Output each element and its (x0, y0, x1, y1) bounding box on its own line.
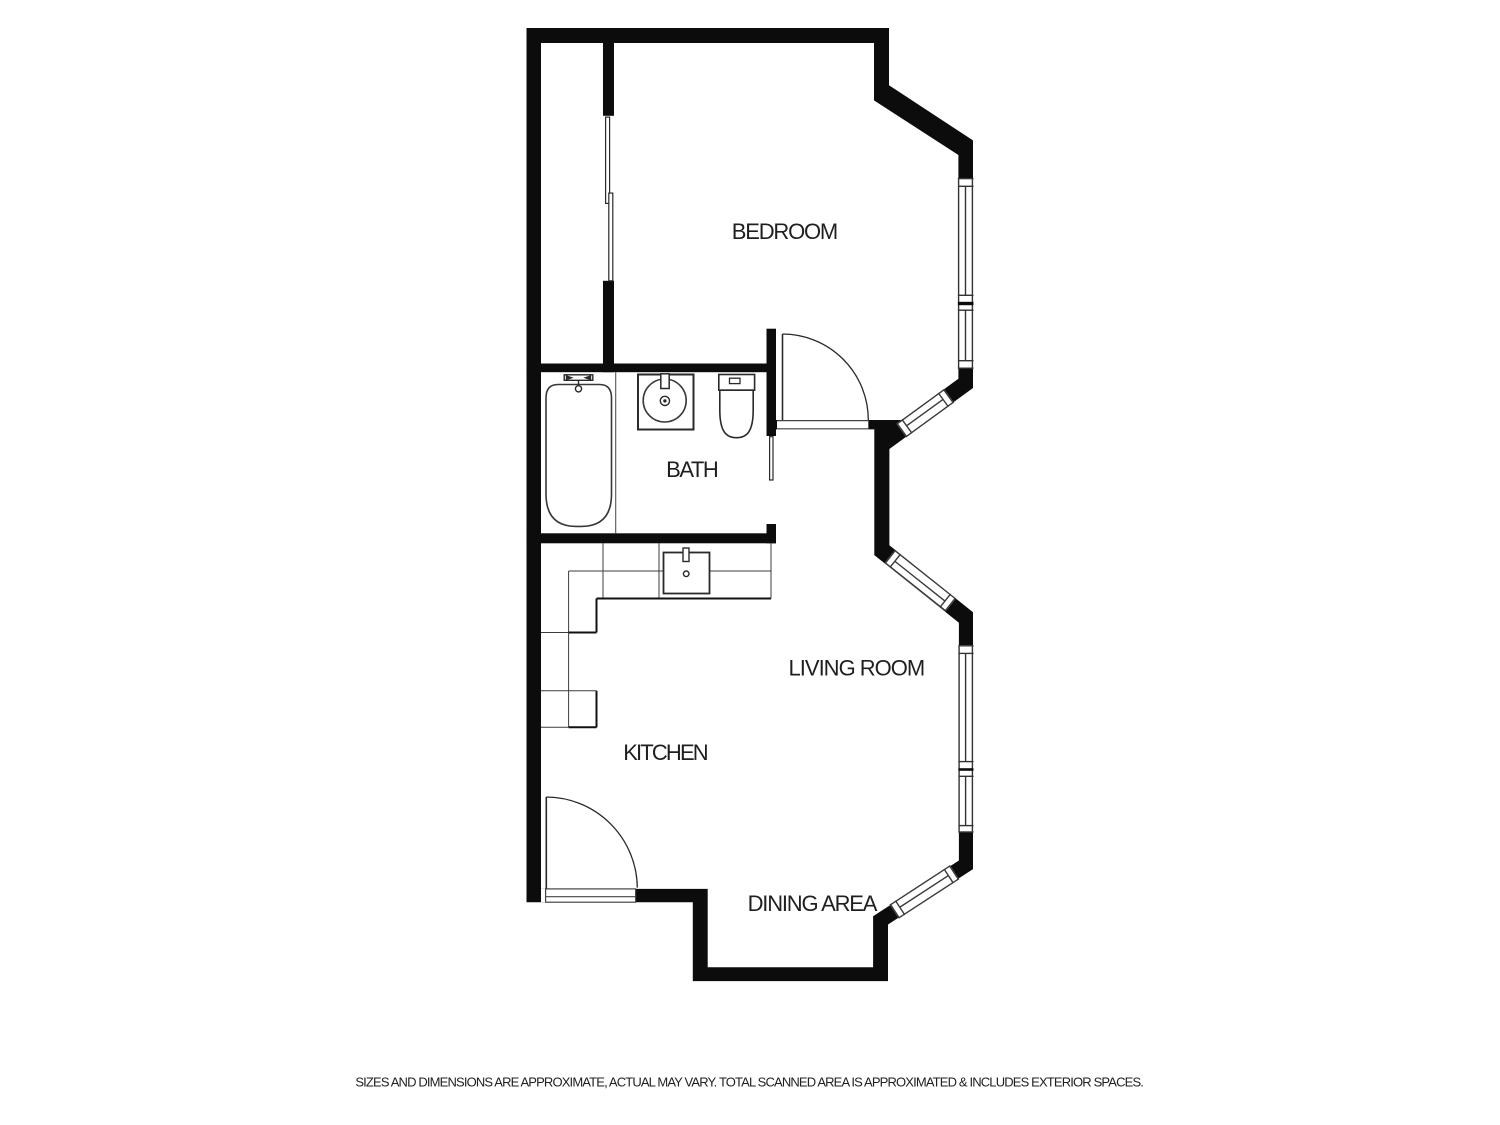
svg-text:SIZES AND DIMENSIONS ARE APPRO: SIZES AND DIMENSIONS ARE APPROXIMATE, AC… (355, 1075, 1143, 1090)
svg-text:KITCHEN: KITCHEN (623, 740, 708, 765)
svg-text:LIVING ROOM: LIVING ROOM (789, 655, 925, 680)
svg-text:BEDROOM: BEDROOM (732, 219, 837, 244)
svg-text:BATH: BATH (666, 457, 718, 482)
svg-text:DINING AREA: DINING AREA (748, 891, 878, 916)
